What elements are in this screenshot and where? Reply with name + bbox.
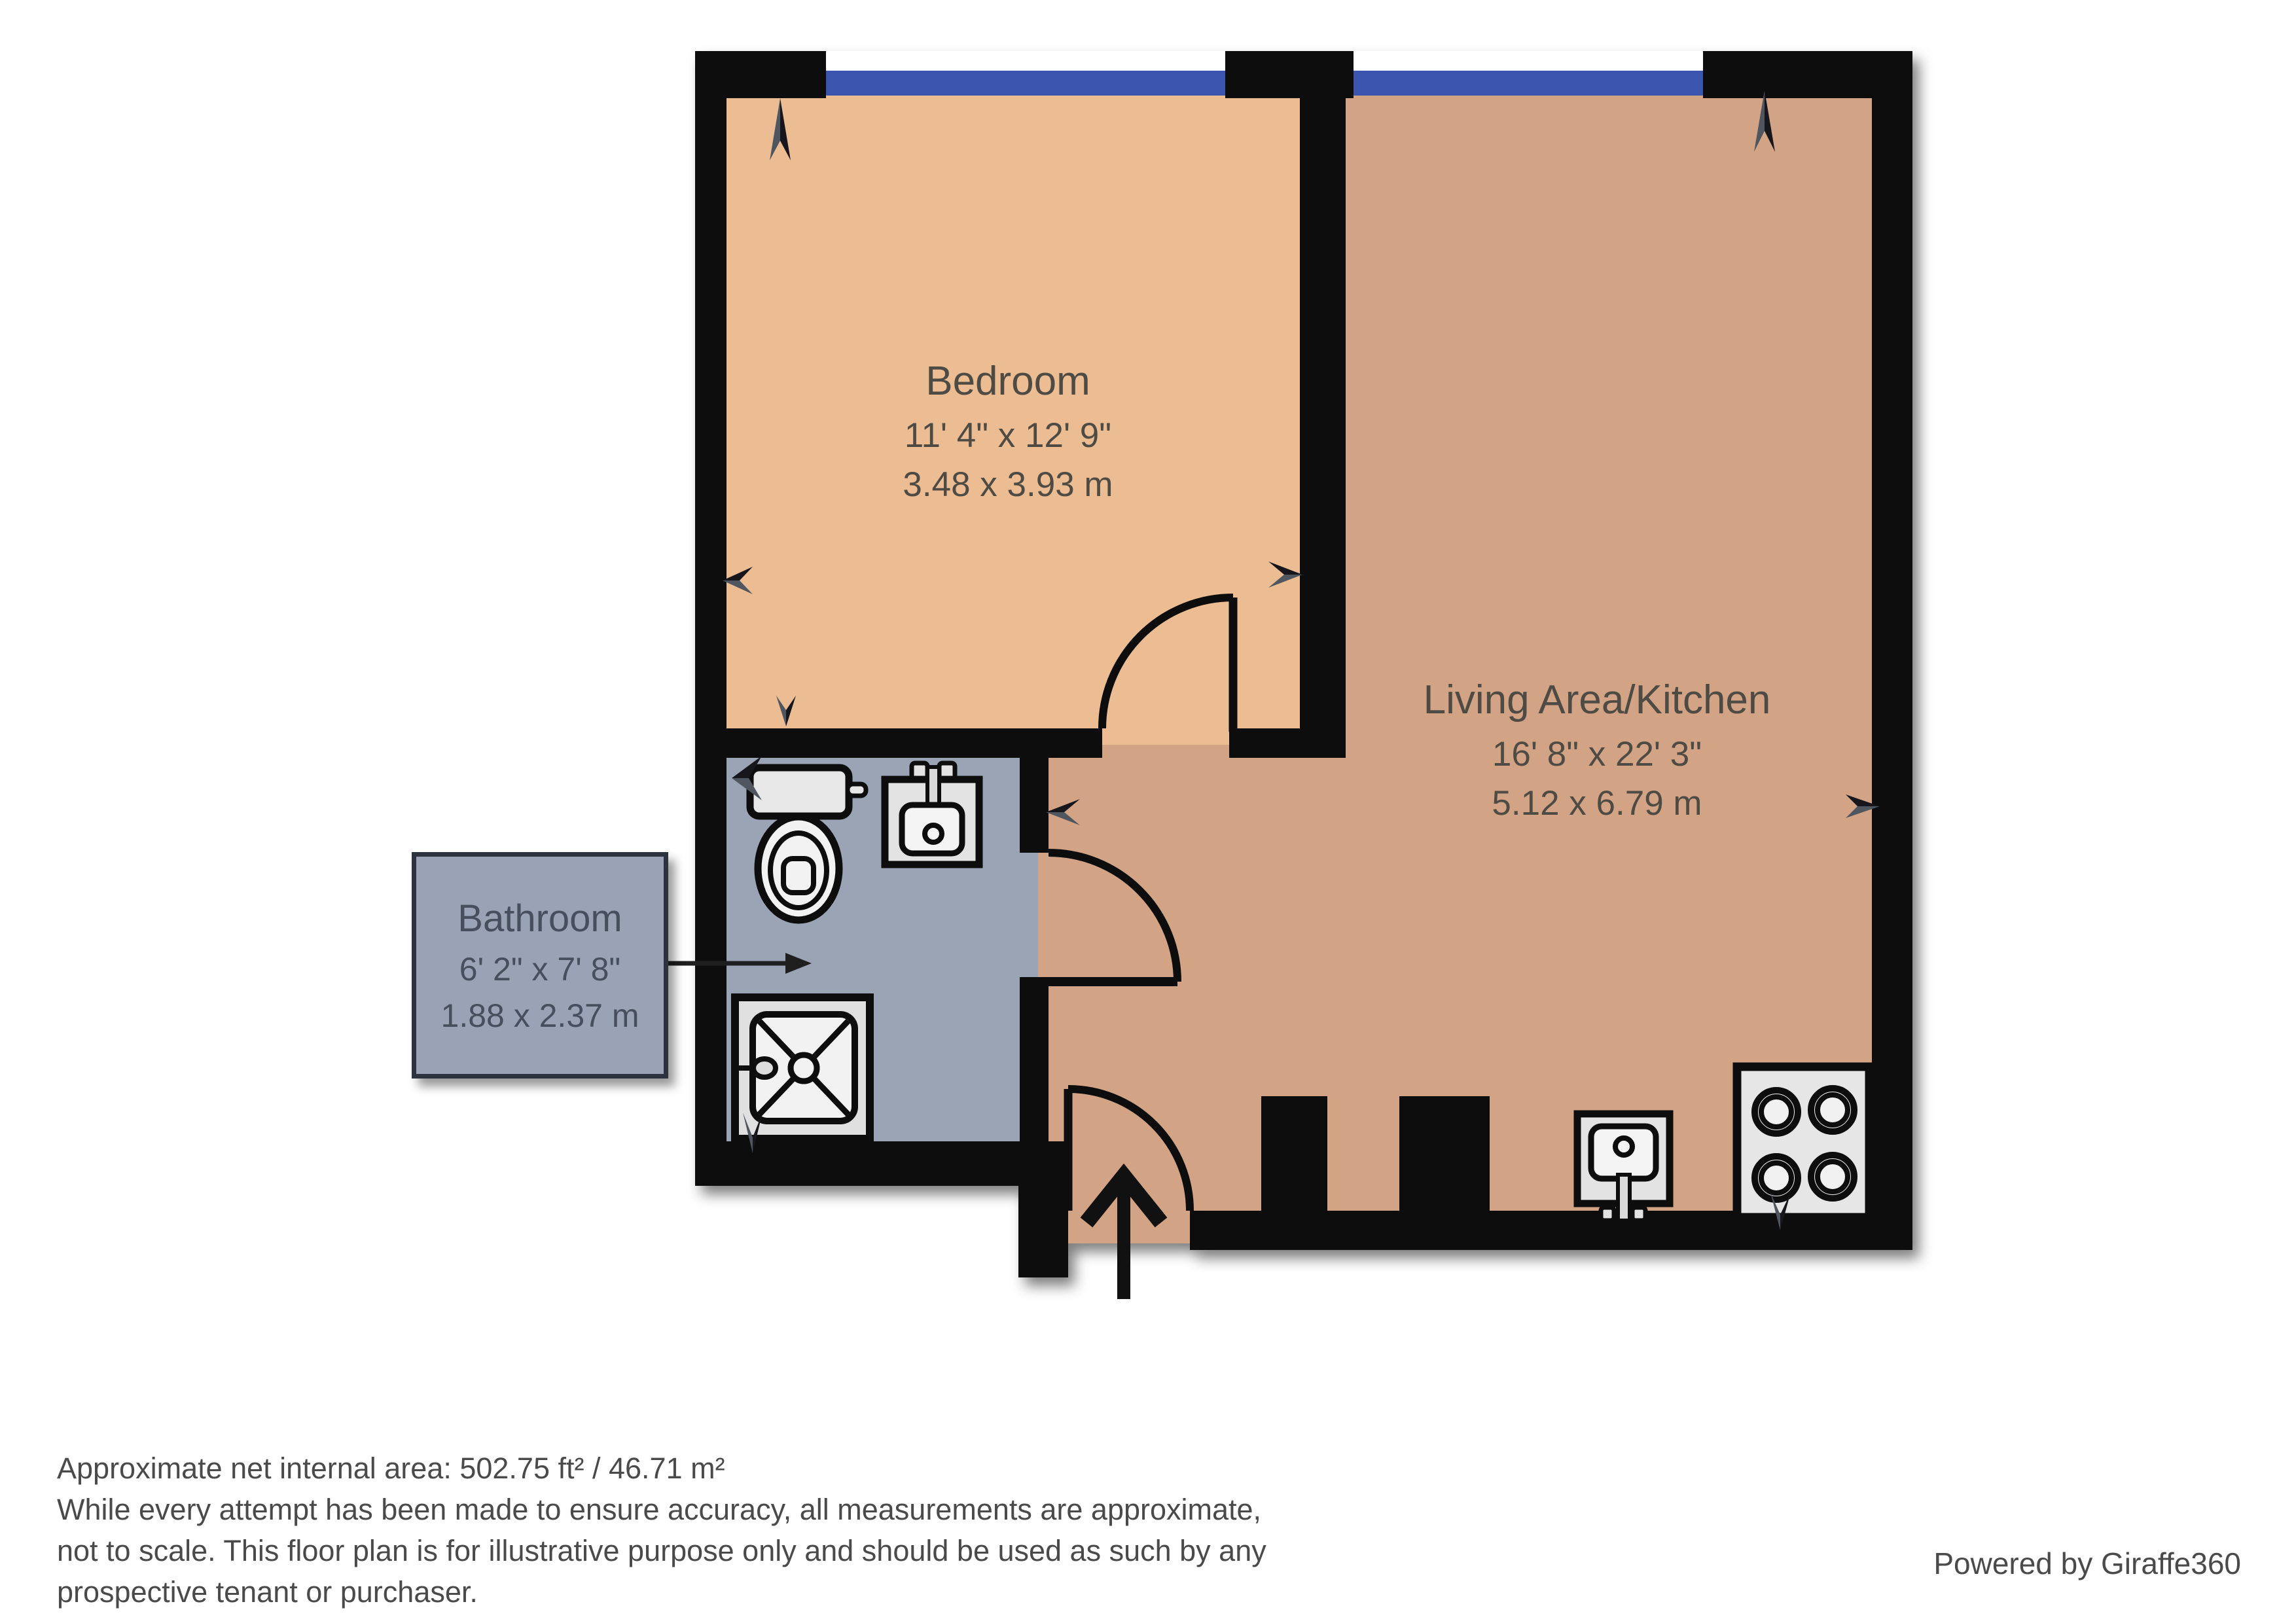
wall-bedroom-door-stub [1229, 728, 1304, 758]
floorplan-drawing [0, 0, 2296, 1623]
bathroom-dims-imperial: 6' 2" x 7' 8" [459, 946, 620, 993]
wall-entry-stub-a [1261, 1096, 1327, 1211]
plan-body [695, 51, 1912, 1277]
bedroom-doorway-floor [1102, 728, 1229, 747]
window-icon-bedroom [826, 71, 1225, 96]
disclaimer-line-2: not to scale. This floor plan is for ill… [57, 1530, 1628, 1571]
disclaimer-line-3: prospective tenant or purchaser. [57, 1571, 1628, 1613]
wall-bathroom-right-upper [1020, 758, 1049, 853]
wall-left [695, 51, 726, 1186]
floorplan-page: Bedroom 11' 4" x 12' 9" 3.48 x 3.93 m Li… [0, 0, 2296, 1623]
wall-bathroom-right-lower [1020, 977, 1049, 1141]
floors [726, 95, 1872, 1243]
wall-bedroom-living-divider [1300, 51, 1346, 758]
wall-top-a [695, 51, 826, 98]
bathroom-label-box: Bathroom 6' 2" x 7' 8" 1.88 x 2.37 m [412, 852, 668, 1079]
footer-disclaimer: Approximate net internal area: 502.75 ft… [57, 1448, 1628, 1613]
bathroom-doorway-floor-2 [1038, 853, 1050, 977]
shower-icon [735, 997, 870, 1139]
wall-entry-left [1018, 1141, 1068, 1277]
powered-by: Powered by Giraffe360 [1933, 1546, 2241, 1581]
kitchen-sink-icon [1577, 1114, 1670, 1221]
window-frame-living [1354, 51, 1703, 72]
bathroom-dims-metric: 1.88 x 2.37 m [441, 993, 639, 1039]
disclaimer-line-1: While every attempt has been made to ens… [57, 1489, 1628, 1530]
wall-bathroom-bottom [695, 1141, 1039, 1186]
bathroom-name: Bathroom [457, 891, 622, 946]
bathroom-doorway-floor [1020, 853, 1039, 977]
hob-icon [1737, 1067, 1869, 1217]
wall-right [1872, 51, 1912, 1250]
bedroom-floor [726, 95, 1300, 728]
window-frame-bedroom [826, 51, 1225, 72]
net-internal-area: Approximate net internal area: 502.75 ft… [57, 1448, 1628, 1489]
bathroom-sink-icon [885, 763, 979, 865]
wall-entry-stub-b [1399, 1096, 1490, 1211]
window-icon-living [1354, 71, 1703, 96]
wall-bedroom-bathroom [726, 728, 1102, 758]
hall-doorway-floor [1102, 745, 1229, 759]
